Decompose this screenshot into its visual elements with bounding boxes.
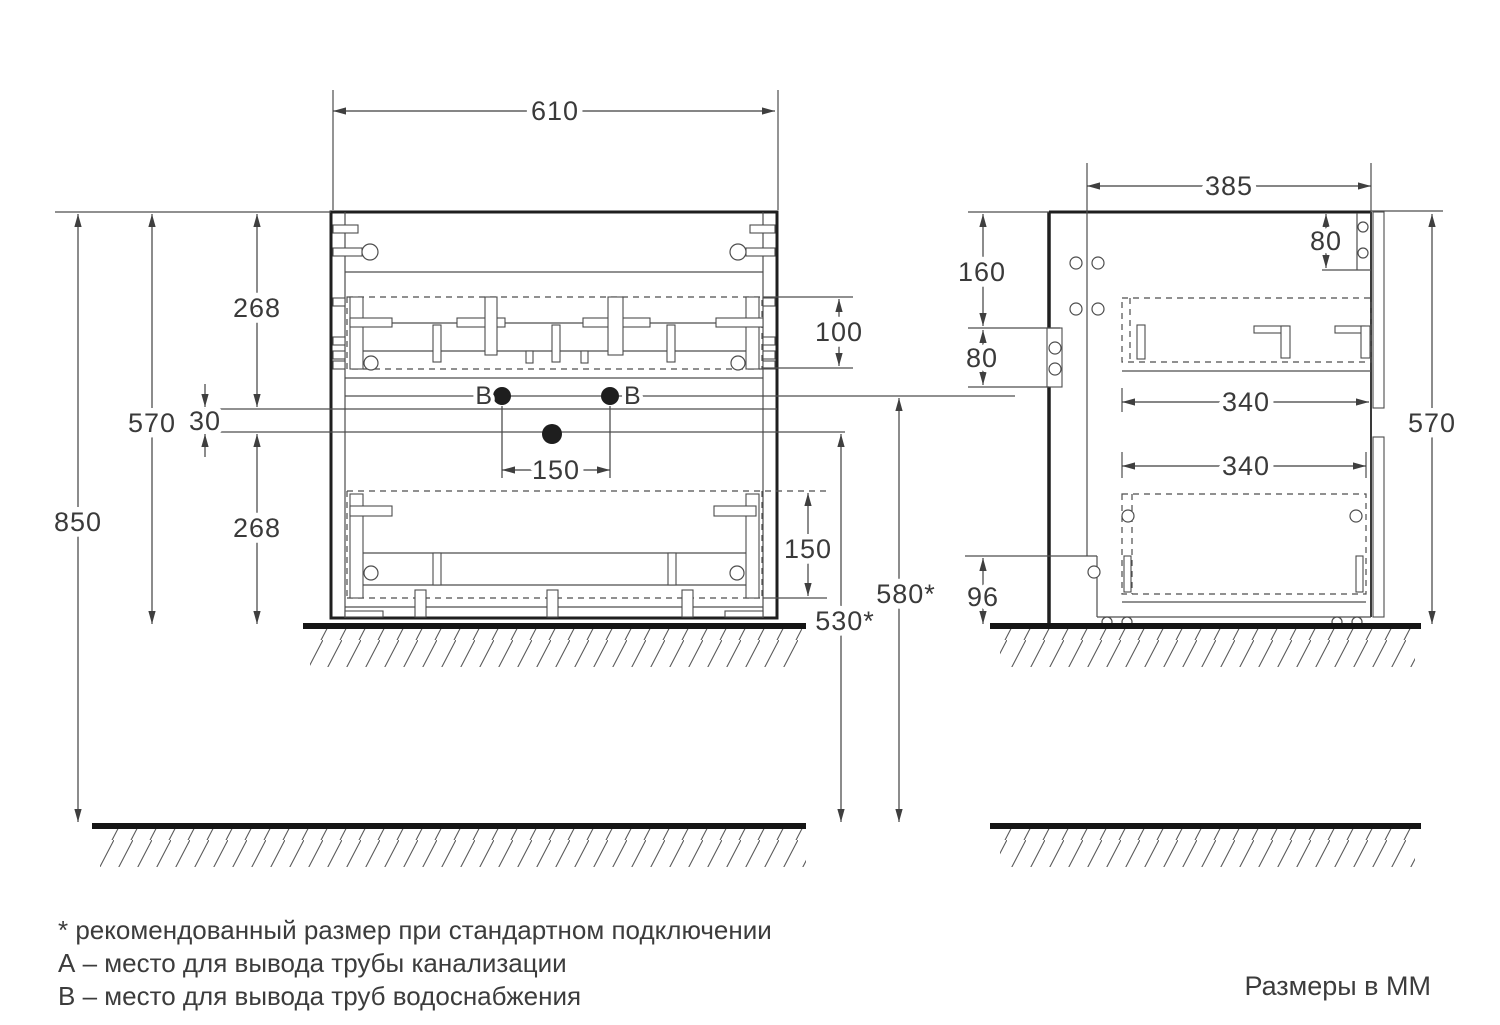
cam-lock-left <box>362 244 378 260</box>
dim-drain-height: 530* <box>815 606 875 636</box>
supply-point-right <box>601 387 619 405</box>
side-front-panel-top <box>1373 212 1384 408</box>
installation-floor <box>92 826 1421 867</box>
front-cabinet-outline <box>331 212 777 618</box>
dim-side-height: 570 <box>1408 408 1456 438</box>
dim-top-drawer-inner: 100 <box>815 317 863 347</box>
side-bottom-drawer-box <box>1122 494 1366 594</box>
floor-hatch-right <box>1000 829 1415 867</box>
cam-lock-right <box>730 244 746 260</box>
wall-bracket <box>1047 328 1062 387</box>
front-side-panels <box>345 212 763 618</box>
front-floor-hatch <box>310 629 802 667</box>
dim-gap: 30 <box>189 406 221 436</box>
supply-label-left: В <box>475 382 492 410</box>
vanity-dimension-drawing: В В 610 850 <box>0 0 1500 1025</box>
dim-front-width: 610 <box>531 96 579 126</box>
dim-drawer-top: 268 <box>233 293 281 323</box>
note-b: В – место для вывода труб водоснабжения <box>58 981 581 1011</box>
dim-drawer-bottom: 268 <box>233 513 281 543</box>
dim-drawer-depth-top: 340 <box>1222 387 1270 417</box>
side-front-panel-bottom <box>1373 437 1384 617</box>
dim-supply-height: 580* <box>876 579 936 609</box>
supply-label-right: В <box>624 382 641 410</box>
dim-height-to-floor: 850 <box>54 507 102 537</box>
dim-hanger-drop: 80 <box>1310 226 1342 256</box>
footnotes: * рекомендованный размер при стандартном… <box>58 915 1431 1011</box>
technical-drawing-page: В В 610 850 <box>0 0 1500 1025</box>
note-a: А – место для вывода трубы канализации <box>58 948 567 978</box>
dim-bottom-drawer-inner: 150 <box>784 534 832 564</box>
note-asterisk: * рекомендованный размер при стандартном… <box>58 915 772 945</box>
units-label: Размеры в ММ <box>1244 971 1431 1001</box>
drain-point <box>542 424 562 444</box>
front-view-dimensions: 610 850 570 268 30 268 100 150 150 530* … <box>54 90 936 822</box>
side-floor-hatch <box>1000 629 1415 667</box>
side-top-drawer-box <box>1122 298 1371 362</box>
floor-hatch-left <box>100 829 806 867</box>
dim-bracket: 80 <box>966 343 998 373</box>
dim-depth: 385 <box>1205 171 1253 201</box>
dim-front-height: 570 <box>128 408 176 438</box>
side-view: 385 80 160 80 340 34 <box>958 163 1456 667</box>
supply-point-left <box>493 387 511 405</box>
dim-supply-spacing: 150 <box>532 455 580 485</box>
dim-drawer-depth-bottom: 340 <box>1222 451 1270 481</box>
dim-plinth: 96 <box>967 582 999 612</box>
dim-back-top: 160 <box>958 257 1006 287</box>
